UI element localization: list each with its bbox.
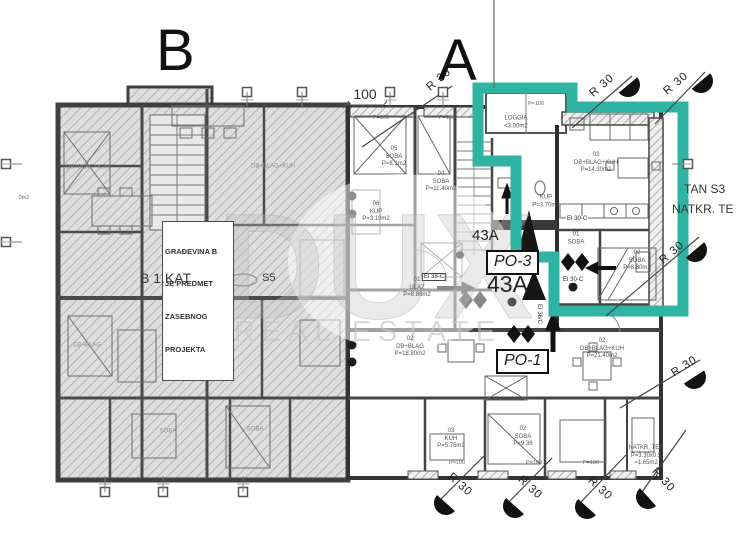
reference-marker [672,160,694,169]
reference-marker [0,160,22,169]
r30-label: R 30 [587,72,616,99]
r30-semicircle-icon [570,499,596,524]
floorplan-drawing: DUX REAL ESTATE R 30R 30R 30R 30R 30R 30… [0,0,740,550]
reference-marker [0,238,22,247]
watermark: DUX REAL ESTATE [217,182,534,350]
r30-semicircle-icon [684,370,711,393]
r30-label: R 30 [661,70,690,97]
stairs-building-b [150,115,205,230]
watermark-line2: REAL ESTATE [234,316,502,348]
floorplan-page: DUX REAL ESTATE R 30R 30R 30R 30R 30R 30… [0,0,740,550]
r30-semicircle-icon [498,498,524,523]
reference-marker [384,88,396,109]
r30-semicircle-icon [692,73,718,98]
r30-label: R 30 [669,354,699,379]
r30-semicircle-icon [619,77,645,102]
reference-marker [437,88,449,109]
r30-semicircle-icon [686,242,712,267]
r30-semicircle-icon [631,488,656,514]
